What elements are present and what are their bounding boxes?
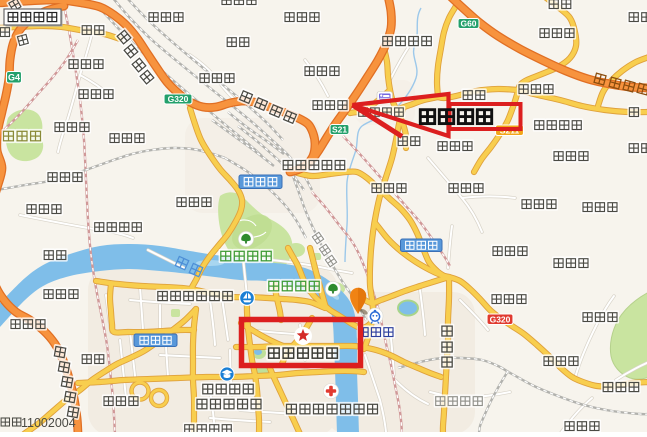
svg-text:G320: G320 [490, 314, 511, 324]
svg-text:S21: S21 [332, 125, 347, 135]
svg-text:G60: G60 [460, 19, 476, 29]
svg-text:G320: G320 [168, 94, 189, 104]
svg-text:G4: G4 [8, 72, 20, 82]
svg-text:11002004: 11002004 [21, 416, 76, 430]
